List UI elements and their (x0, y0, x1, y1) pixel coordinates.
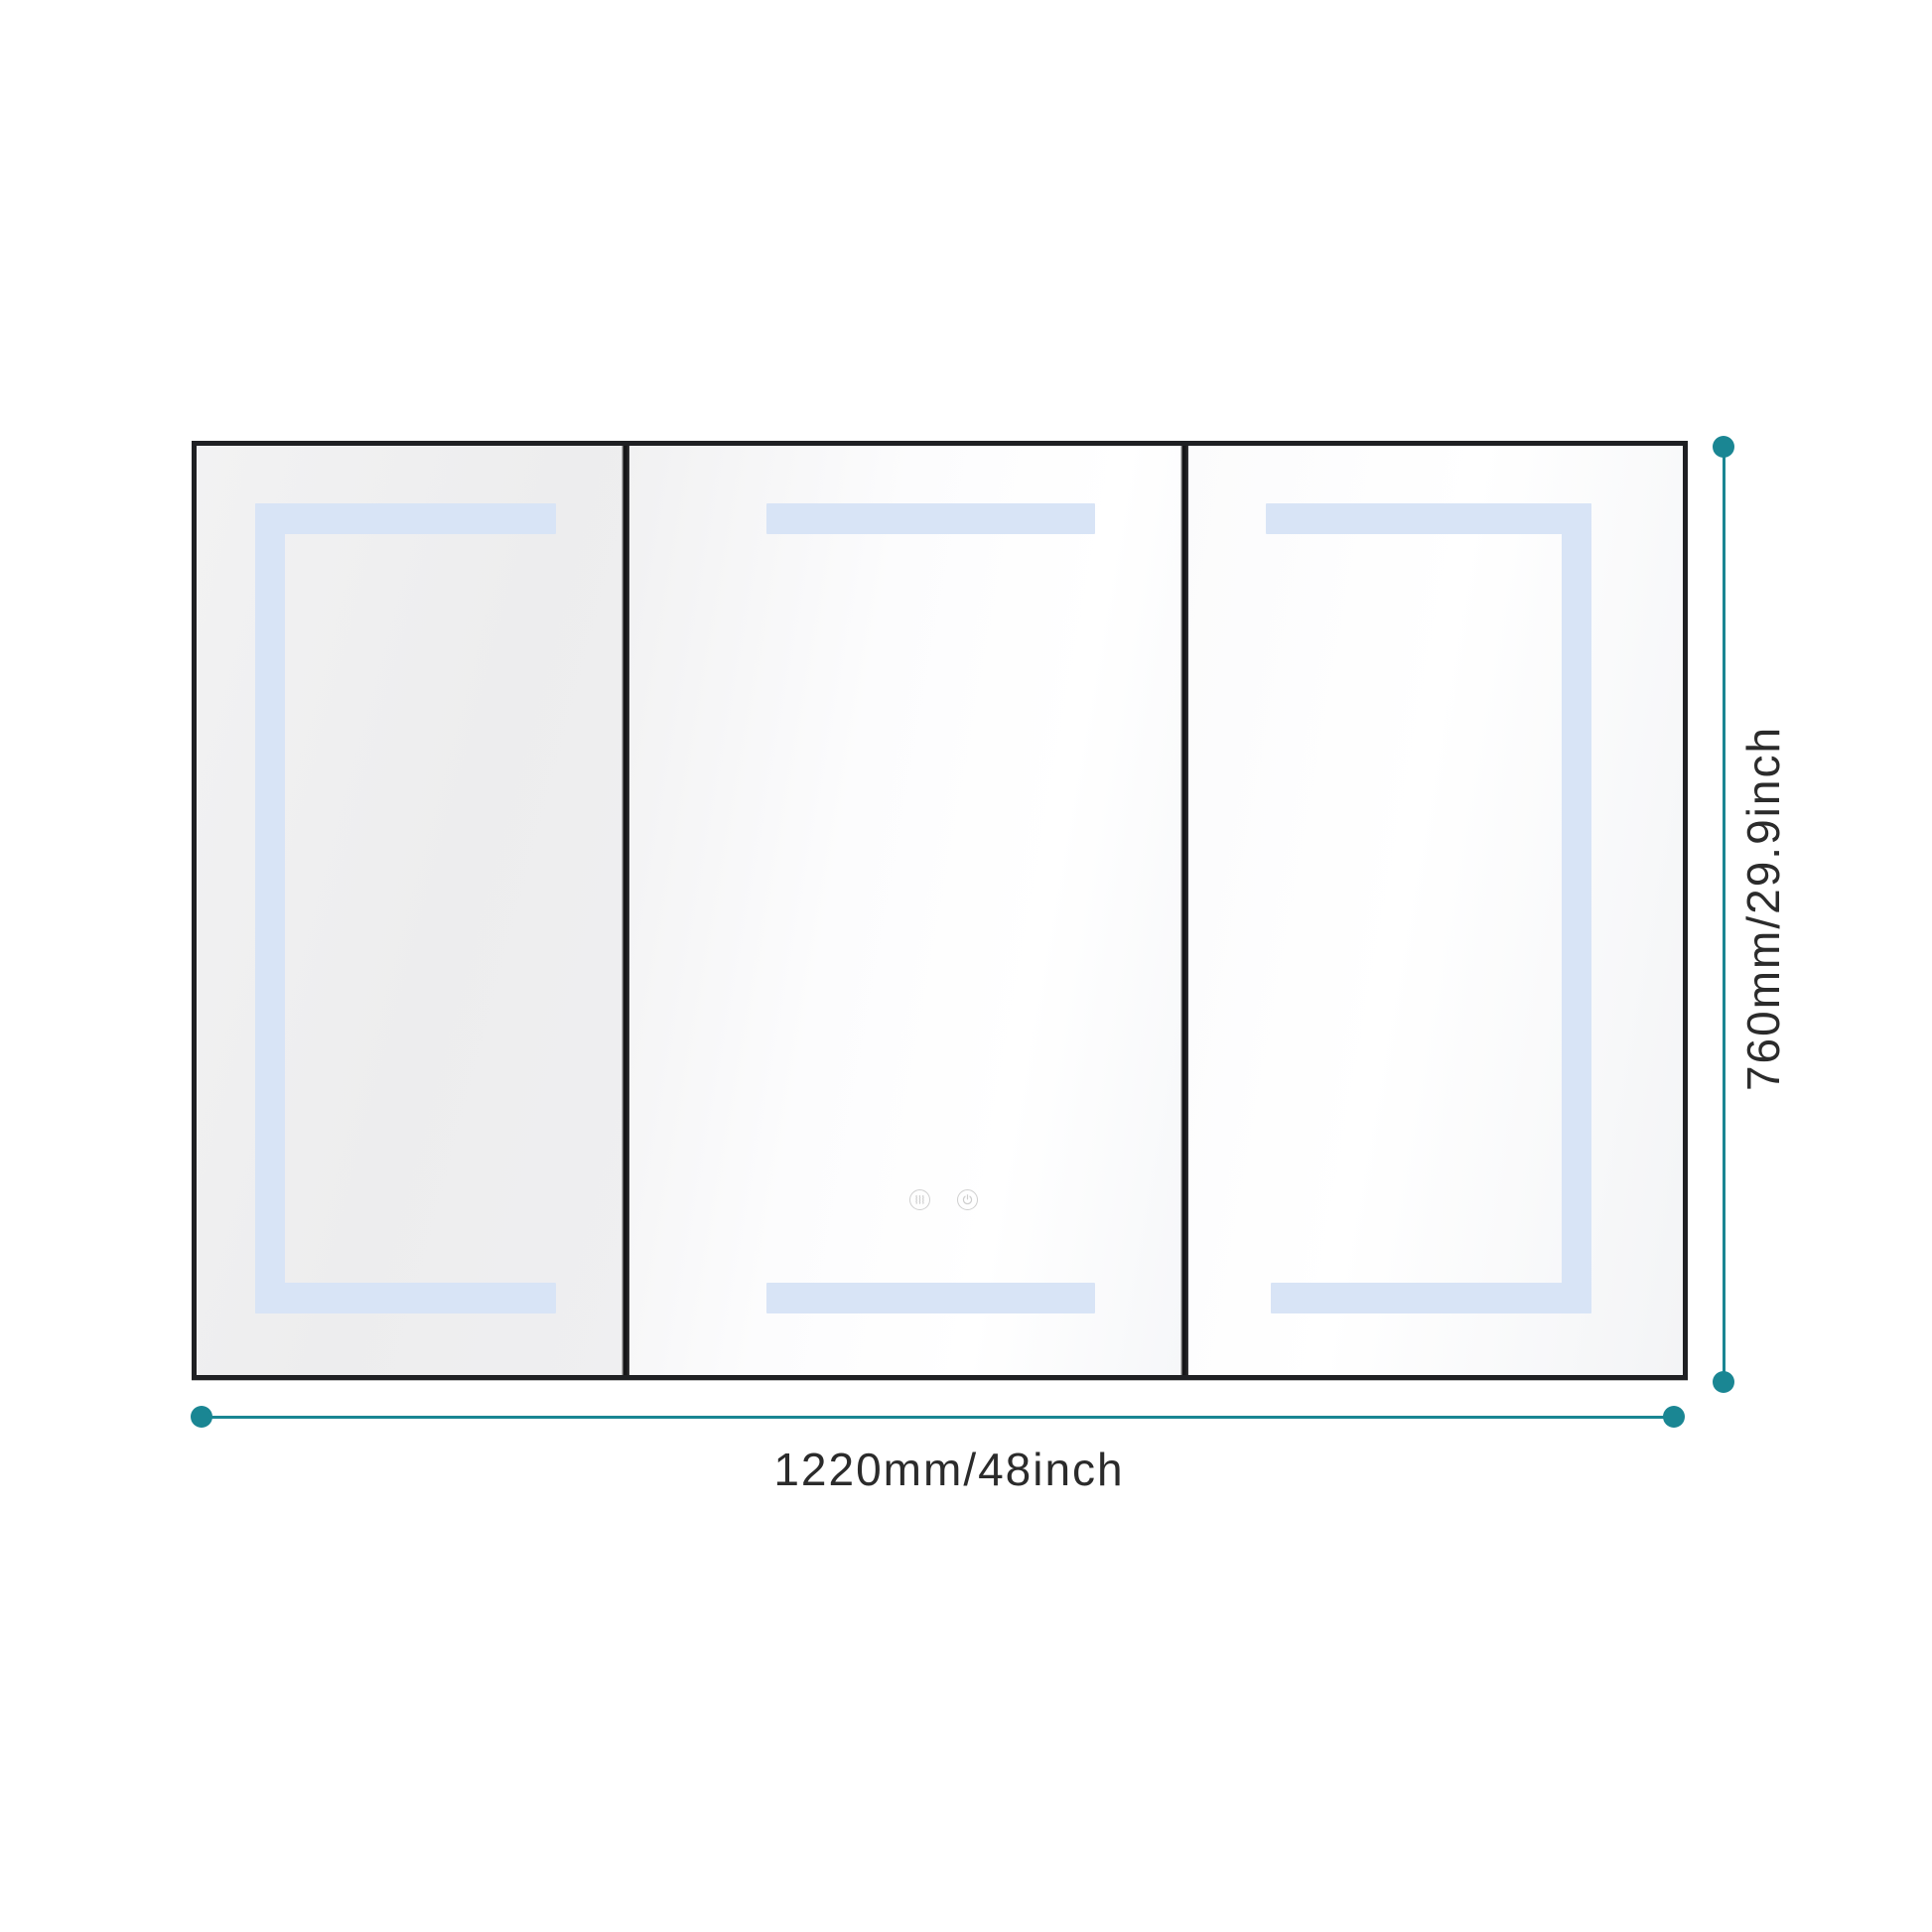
led-strip-top (766, 503, 1095, 534)
door-gap (1180, 446, 1188, 1375)
defog-steam-icon (913, 1193, 926, 1206)
door-gap (621, 446, 629, 1375)
width-dimension-endpoint-right (1663, 1406, 1685, 1428)
led-strip-bottom (766, 1283, 1095, 1313)
power-button (957, 1189, 978, 1210)
led-strip-top (1266, 503, 1591, 534)
led-strip-bottom (255, 1283, 556, 1313)
height-dimension-endpoint-bottom (1713, 1371, 1734, 1393)
height-dimension-line (1723, 447, 1725, 1382)
dimension-diagram: 1220mm/48inch 760mm/29.9inch (0, 0, 1932, 1932)
cabinet-door-middle (629, 446, 1180, 1375)
width-dimension-line (202, 1416, 1674, 1419)
width-dimension-label: 1220mm/48inch (773, 1443, 1124, 1496)
led-strip-right (1562, 503, 1591, 1313)
defog-button (909, 1189, 930, 1210)
height-dimension-endpoint-top (1713, 436, 1734, 458)
led-strip-left (255, 503, 285, 1313)
cabinet-door-right (1188, 446, 1683, 1375)
width-dimension-endpoint-left (191, 1406, 212, 1428)
height-dimension-label: 760mm/29.9inch (1736, 726, 1790, 1091)
power-icon (961, 1193, 974, 1206)
led-strip-top (255, 503, 556, 534)
cabinet-door-left (197, 446, 621, 1375)
touch-controls (909, 1189, 978, 1210)
mirror-cabinet (192, 441, 1688, 1380)
led-strip-bottom (1271, 1283, 1591, 1313)
